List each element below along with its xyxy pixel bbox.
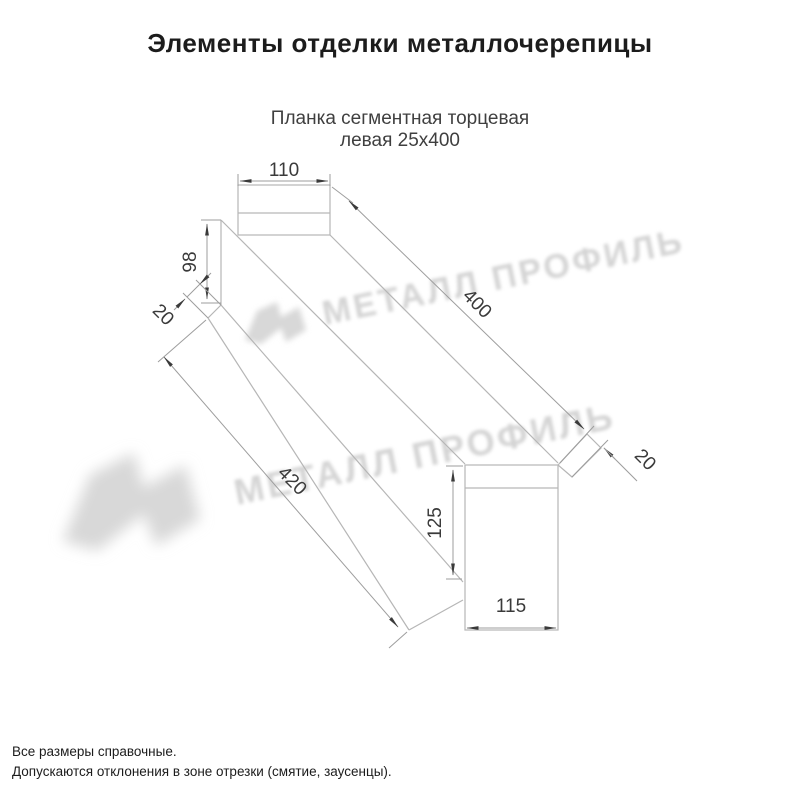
extension-line	[572, 440, 608, 477]
dim-label-flange-width: 110	[269, 160, 299, 181]
footer-notes: Все размеры справочные. Допускаются откл…	[12, 742, 392, 782]
dim-label-far-hem: 20	[630, 445, 660, 475]
dim-arrow	[174, 299, 185, 310]
dim-label-near-hem: 20	[148, 300, 178, 330]
brand-logo-icon	[63, 453, 200, 551]
dim-label-near-height: 98	[180, 251, 201, 272]
dim-label-end-width: 115	[496, 596, 526, 617]
dim-line-web-length	[164, 357, 398, 627]
watermark-lower: МЕТАЛЛ ПРОФИЛЬ	[63, 395, 619, 551]
technical-drawing: МЕТАЛЛ ПРОФИЛЬ МЕТАЛЛ ПРОФИЛЬ	[0, 0, 800, 800]
dim-arrow	[200, 273, 211, 284]
dim-label-end-height: 125	[425, 507, 446, 539]
brand-logo-icon	[245, 302, 306, 344]
watermark-text: МЕТАЛЛ ПРОФИЛЬ	[230, 395, 618, 513]
watermark-upper: МЕТАЛЛ ПРОФИЛЬ	[245, 222, 688, 344]
catalog-drawing-page: Элементы отделки металлочерепицы Планка …	[0, 0, 800, 800]
extension-line	[332, 187, 353, 203]
footer-note-1: Все размеры справочные.	[12, 742, 392, 762]
watermark-text: МЕТАЛЛ ПРОФИЛЬ	[319, 222, 688, 333]
extension-line	[389, 632, 407, 648]
footer-note-2: Допускаются отклонения в зоне отрезки (с…	[12, 762, 392, 782]
dim-leader	[604, 448, 637, 481]
flange-end-view	[238, 185, 330, 235]
dim-line-near-hem	[187, 284, 200, 297]
tip-connector-edge	[409, 600, 463, 630]
hem-near-fold	[208, 305, 221, 318]
